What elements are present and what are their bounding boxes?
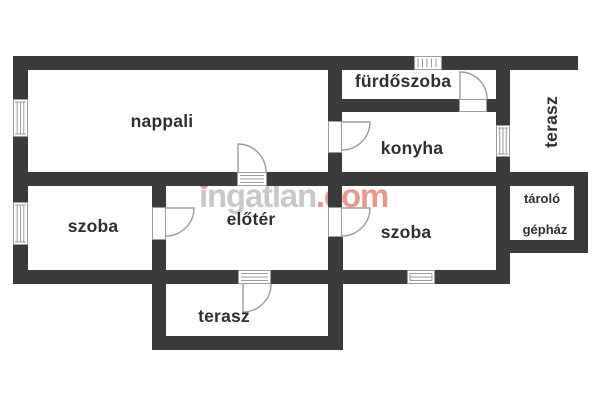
room-label-konyha: konyha <box>381 138 444 158</box>
wall-segment <box>13 56 28 99</box>
room-label-furdoszoba: fürdőszoba <box>355 71 451 91</box>
wall-segment <box>13 172 237 186</box>
wall-segment <box>574 172 588 253</box>
room-label-szoba-left: szoba <box>68 216 119 236</box>
wall-segment <box>267 172 588 186</box>
wall-segment <box>328 153 342 207</box>
room-label-gephaz: gépház <box>523 222 568 237</box>
room-label-terasz-bottom: terasz <box>198 306 250 326</box>
wall-segment <box>328 70 342 121</box>
wall-segment <box>442 56 578 70</box>
window-icon <box>408 271 435 284</box>
wall-segment <box>152 186 166 207</box>
wall-segment <box>13 270 238 284</box>
window-icon <box>415 57 442 70</box>
wall-segment <box>13 245 28 284</box>
room-label-eloter: előtér <box>227 209 276 229</box>
wall-segment <box>152 336 343 350</box>
room-label-szoba-right: szoba <box>381 222 432 242</box>
wall-segment <box>496 70 510 125</box>
room-label-tarolo: tároló <box>524 191 560 206</box>
room-label-terasz-right: terasz <box>541 96 561 148</box>
wall-segment <box>13 56 414 70</box>
window-icon <box>14 100 28 137</box>
wall-segment <box>487 99 496 112</box>
wall-segment <box>328 237 343 350</box>
floor-plan: ingatlan.com <box>0 0 600 401</box>
wall-segment <box>496 157 510 284</box>
wall-segment <box>152 240 166 350</box>
floor-plan-drawing: ingatlan.com <box>0 0 600 401</box>
window-icon <box>497 126 510 157</box>
room-label-nappali: nappali <box>131 111 194 131</box>
wall-segment <box>341 99 459 112</box>
window-icon <box>14 203 28 245</box>
wall-segment <box>13 137 28 202</box>
